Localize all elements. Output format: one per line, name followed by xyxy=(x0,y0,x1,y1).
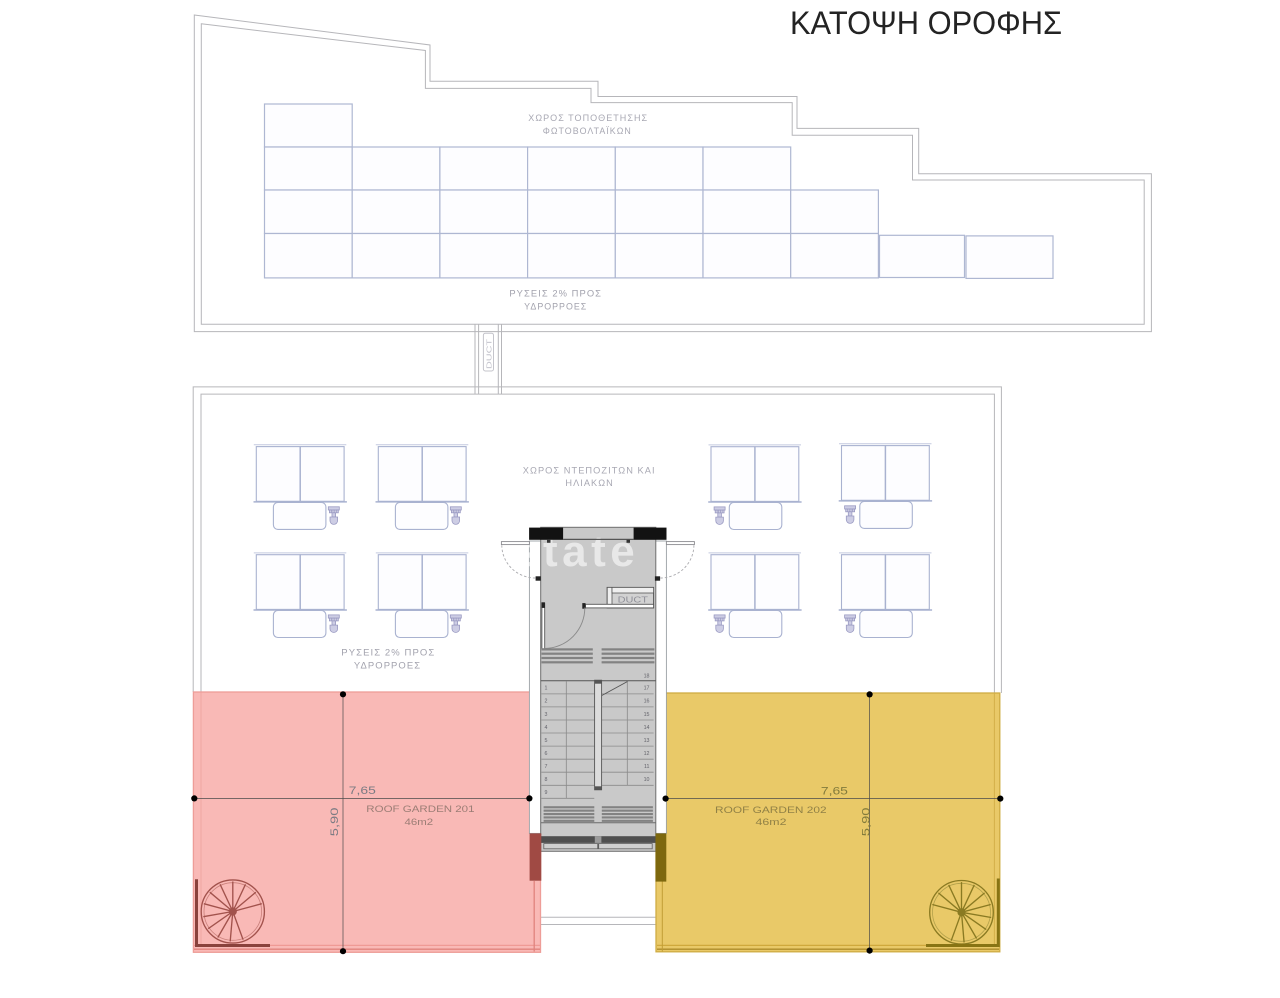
svg-text:1: 1 xyxy=(545,686,548,692)
svg-text:10: 10 xyxy=(644,777,650,783)
svg-text:7: 7 xyxy=(545,764,548,770)
svg-text:5: 5 xyxy=(545,738,548,744)
svg-text:ΡΥΣΕΙΣ 2% ΠΡΟΣ: ΡΥΣΕΙΣ 2% ΠΡΟΣ xyxy=(341,648,435,658)
svg-text:5,90: 5,90 xyxy=(329,808,341,837)
svg-text:ΦΩΤΟΒΟΛΤΑΪΚΩΝ: ΦΩΤΟΒΟΛΤΑΪΚΩΝ xyxy=(543,126,632,136)
svg-text:7,65: 7,65 xyxy=(349,785,376,797)
svg-text:12: 12 xyxy=(644,751,650,757)
svg-text:DUCT: DUCT xyxy=(618,594,648,604)
svg-text:ROOF GARDEN 201: ROOF GARDEN 201 xyxy=(366,804,474,815)
svg-text:11: 11 xyxy=(644,764,650,770)
svg-text:9: 9 xyxy=(545,790,548,796)
svg-text:ΡΥΣΕΙΣ 2% ΠΡΟΣ: ΡΥΣΕΙΣ 2% ΠΡΟΣ xyxy=(509,289,602,299)
svg-text:ΚΑΤΟΨΗ ΟΡΟΦΗΣ: ΚΑΤΟΨΗ ΟΡΟΦΗΣ xyxy=(790,5,1062,41)
svg-text:3: 3 xyxy=(545,712,548,718)
svg-text:6: 6 xyxy=(545,751,548,757)
svg-text:13: 13 xyxy=(644,738,650,744)
svg-text:15: 15 xyxy=(644,712,650,718)
svg-text:14: 14 xyxy=(644,725,650,731)
svg-text:8: 8 xyxy=(545,777,548,783)
svg-text:ΥΔΡΟΡΡΟΕΣ: ΥΔΡΟΡΡΟΕΣ xyxy=(354,660,421,670)
svg-text:DUCT: DUCT xyxy=(485,338,494,369)
svg-text:2: 2 xyxy=(545,699,548,705)
svg-text:17: 17 xyxy=(644,686,650,692)
svg-text:ROOF GARDEN 202: ROOF GARDEN 202 xyxy=(715,805,827,816)
svg-text:18: 18 xyxy=(644,674,650,680)
svg-text:ΧΩΡΟΣ ΤΟΠΟΘΕΤΗΣΗΣ: ΧΩΡΟΣ ΤΟΠΟΘΕΤΗΣΗΣ xyxy=(528,113,648,123)
svg-text:ΗΛΙΑΚΩΝ: ΗΛΙΑΚΩΝ xyxy=(565,478,613,488)
svg-text:ΥΔΡΟΡΡΟΕΣ: ΥΔΡΟΡΡΟΕΣ xyxy=(524,302,587,312)
svg-text:7,65: 7,65 xyxy=(821,786,848,798)
svg-text:5,90: 5,90 xyxy=(860,808,872,837)
svg-text:46m2: 46m2 xyxy=(756,817,787,828)
svg-text:4: 4 xyxy=(545,725,548,731)
svg-text:ΧΩΡΟΣ ΝΤΕΠΟΖΙΤΩΝ ΚΑΙ: ΧΩΡΟΣ ΝΤΕΠΟΖΙΤΩΝ ΚΑΙ xyxy=(523,466,656,476)
svg-text:16: 16 xyxy=(644,699,650,705)
svg-text:46m2: 46m2 xyxy=(405,817,434,828)
